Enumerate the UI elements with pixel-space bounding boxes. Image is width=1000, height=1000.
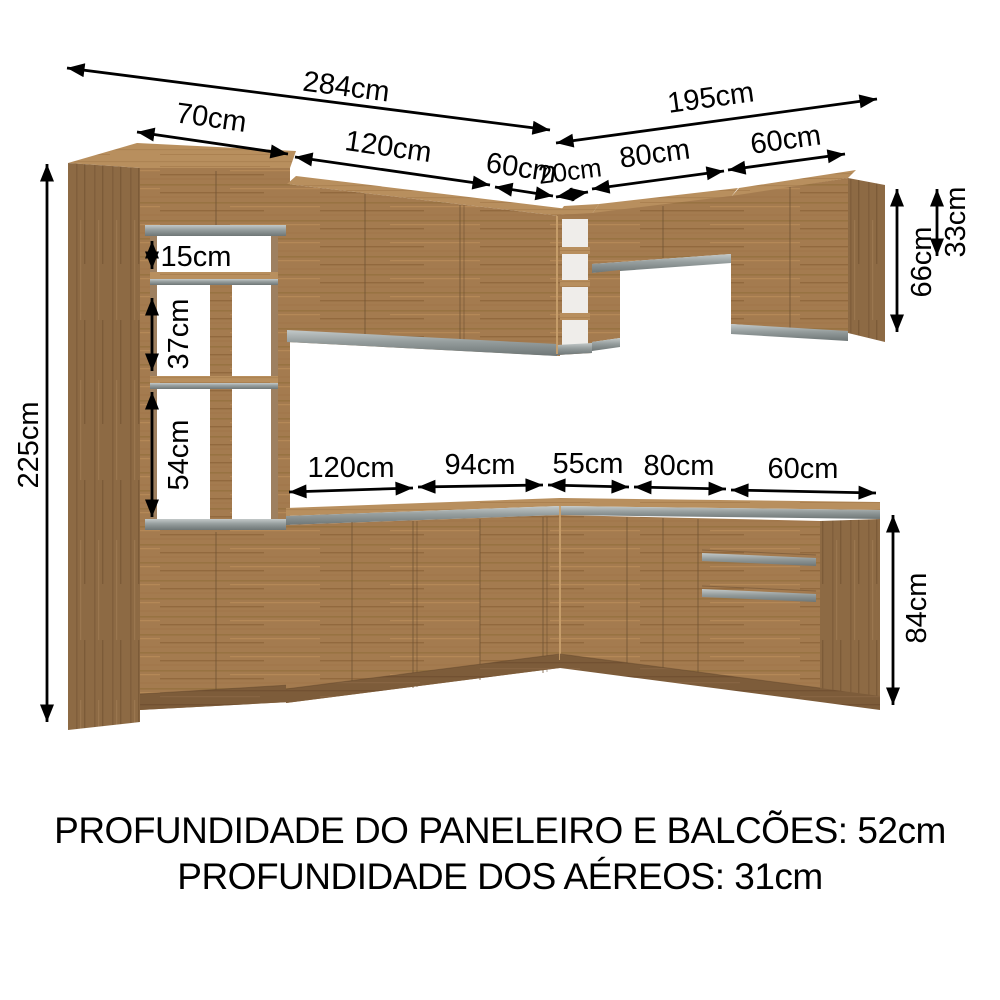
cubby-shelf-1 [560, 247, 590, 254]
dimension-label: 55cm [553, 448, 624, 480]
dimension-label: 54cm [163, 420, 195, 491]
dimension-arrow [418, 485, 543, 487]
dimension-label: 225cm [13, 401, 45, 488]
dimension-arrow [634, 487, 726, 489]
dim-upper-right-small-height-33: 33cm [937, 187, 972, 258]
cubby-shelf-3 [560, 313, 590, 320]
dimension-label: 33cm [940, 187, 972, 258]
product-dimension-diagram: 284cm 195cm 70cm 120cm 60cm 20cm 80cm 6 [0, 0, 1000, 1000]
upper-cabinet-right [731, 170, 885, 342]
base-cabinets-left-run [286, 498, 560, 703]
dimension-label: 120cm [307, 452, 394, 484]
kitchen-illustration: 284cm 195cm 70cm 120cm 60cm 20cm 80cm 6 [0, 0, 1000, 1000]
niche-shelf-1-edge [150, 279, 278, 285]
dimension-label: 80cm [644, 450, 715, 482]
niche-shelf-2 [150, 376, 278, 383]
dim-shelf-gap-15: 15cm [152, 241, 231, 273]
dimension-label: 15cm [161, 241, 232, 273]
depth-note-pantry-and-base: PROFUNDIDADE DO PANELEIRO E BALCÕES: 52c… [54, 810, 946, 851]
cubby-opening-1 [562, 219, 588, 247]
cubby-opening-4 [562, 320, 588, 345]
dimension-label: 60cm [768, 453, 839, 485]
cubby-opening-3 [562, 287, 588, 313]
pantry-upper-rail [145, 225, 286, 236]
base-right-side-face [820, 519, 880, 700]
pantry-side-face [68, 163, 140, 730]
dimension-label: 66cm [906, 227, 938, 298]
dimension-label: 84cm [901, 573, 933, 644]
dimension-label: 94cm [445, 449, 516, 481]
dimension-label: 37cm [163, 299, 195, 370]
niche-shelf-2-edge [150, 383, 278, 389]
niche-center-divider [210, 285, 232, 519]
dimension-arrow [548, 485, 629, 487]
cubby-opening-2 [562, 254, 588, 280]
niche-shelf-1 [150, 272, 278, 279]
microwave-niche-side-column [592, 270, 620, 342]
upper-right-side-face [848, 178, 885, 342]
depth-note-wall-cabinets: PROFUNDIDADE DOS AÉREOS: 31cm [177, 856, 822, 897]
corner-shelf-bottom-rail [557, 343, 592, 355]
cubby-shelf-2 [560, 280, 590, 287]
pantry-counter-rail [145, 519, 290, 530]
